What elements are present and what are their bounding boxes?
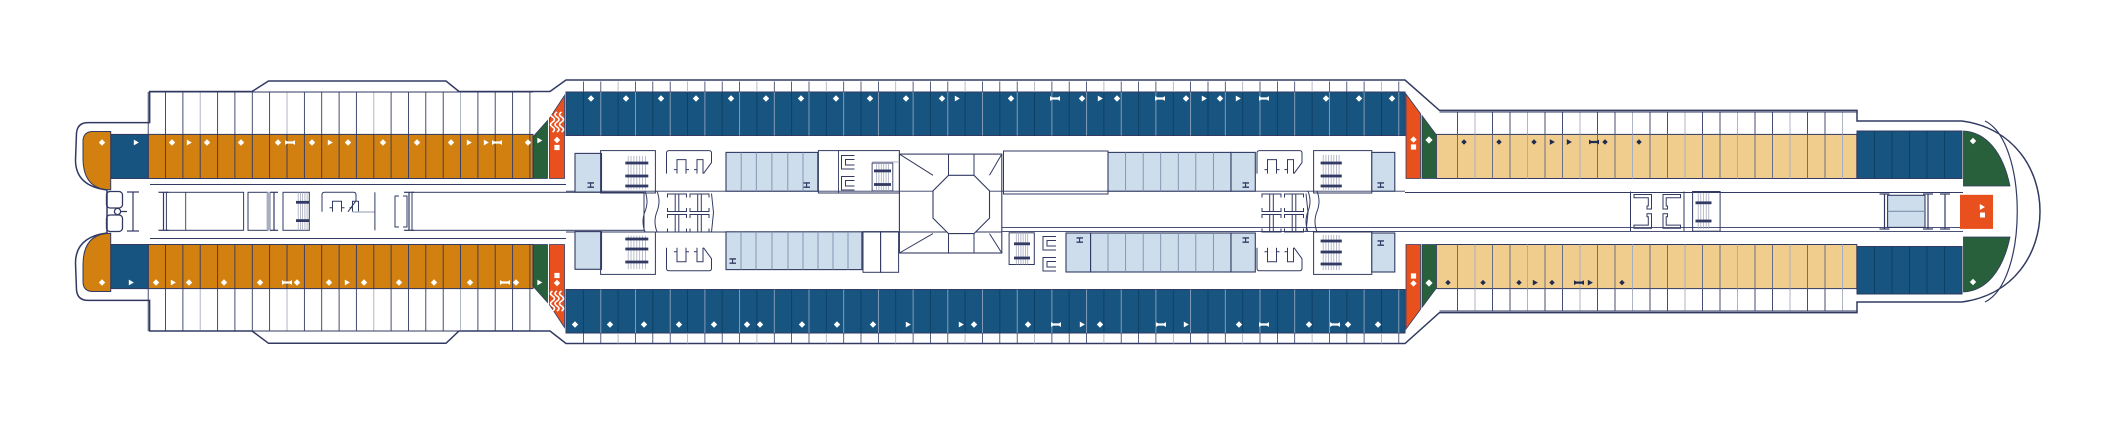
svg-text:H: H xyxy=(1241,236,1252,243)
svg-text:H: H xyxy=(586,181,597,188)
svg-text:H: H xyxy=(1376,181,1387,188)
svg-text:H: H xyxy=(1241,181,1252,188)
svg-text:H: H xyxy=(1376,239,1387,246)
svg-text:H: H xyxy=(1075,236,1086,243)
svg-text:H: H xyxy=(728,257,739,264)
svg-text:H: H xyxy=(802,181,813,188)
